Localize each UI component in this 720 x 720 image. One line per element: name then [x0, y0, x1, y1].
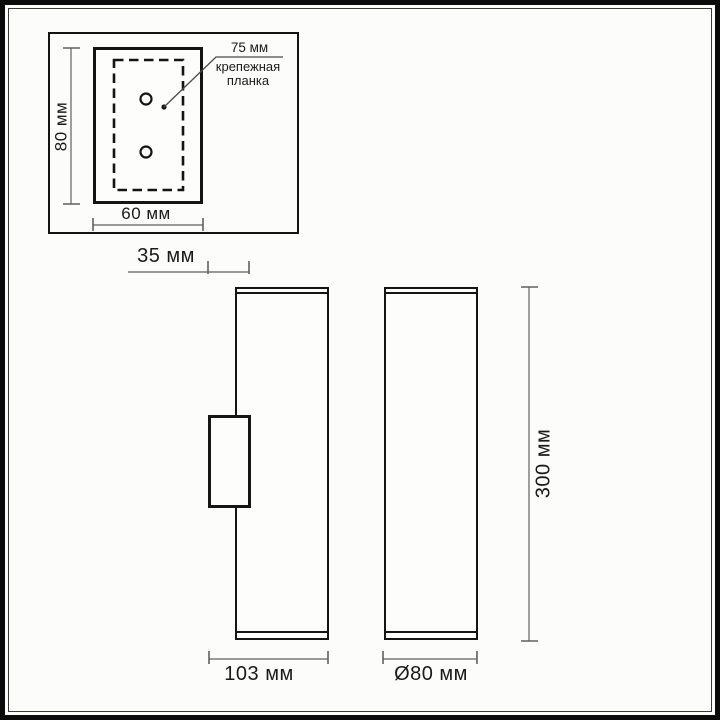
side-diameter-label: Ø80 мм: [377, 663, 485, 686]
front-width-label: 103 мм: [205, 663, 313, 686]
screw-hole-top: [141, 94, 152, 105]
screw-hole-bottom: [141, 147, 152, 158]
callout-name-line1: крепежная: [202, 60, 294, 74]
mounting-slots-dashed-rect: [114, 60, 183, 190]
callout-name-line2: планка: [202, 74, 294, 88]
callout-name-label: крепежная планка: [202, 60, 294, 87]
dimension-linework: [0, 0, 720, 720]
side-height-label: 300 мм: [533, 419, 556, 509]
callout-value-label: 75 мм: [216, 41, 283, 55]
diagram-canvas: 75 мм крепежная планка 80 мм 60 мм 35 мм…: [0, 0, 720, 720]
plate-height-label: 80 мм: [52, 87, 71, 167]
front-offset-label: 35 мм: [116, 245, 216, 268]
plate-width-label: 60 мм: [96, 204, 196, 224]
